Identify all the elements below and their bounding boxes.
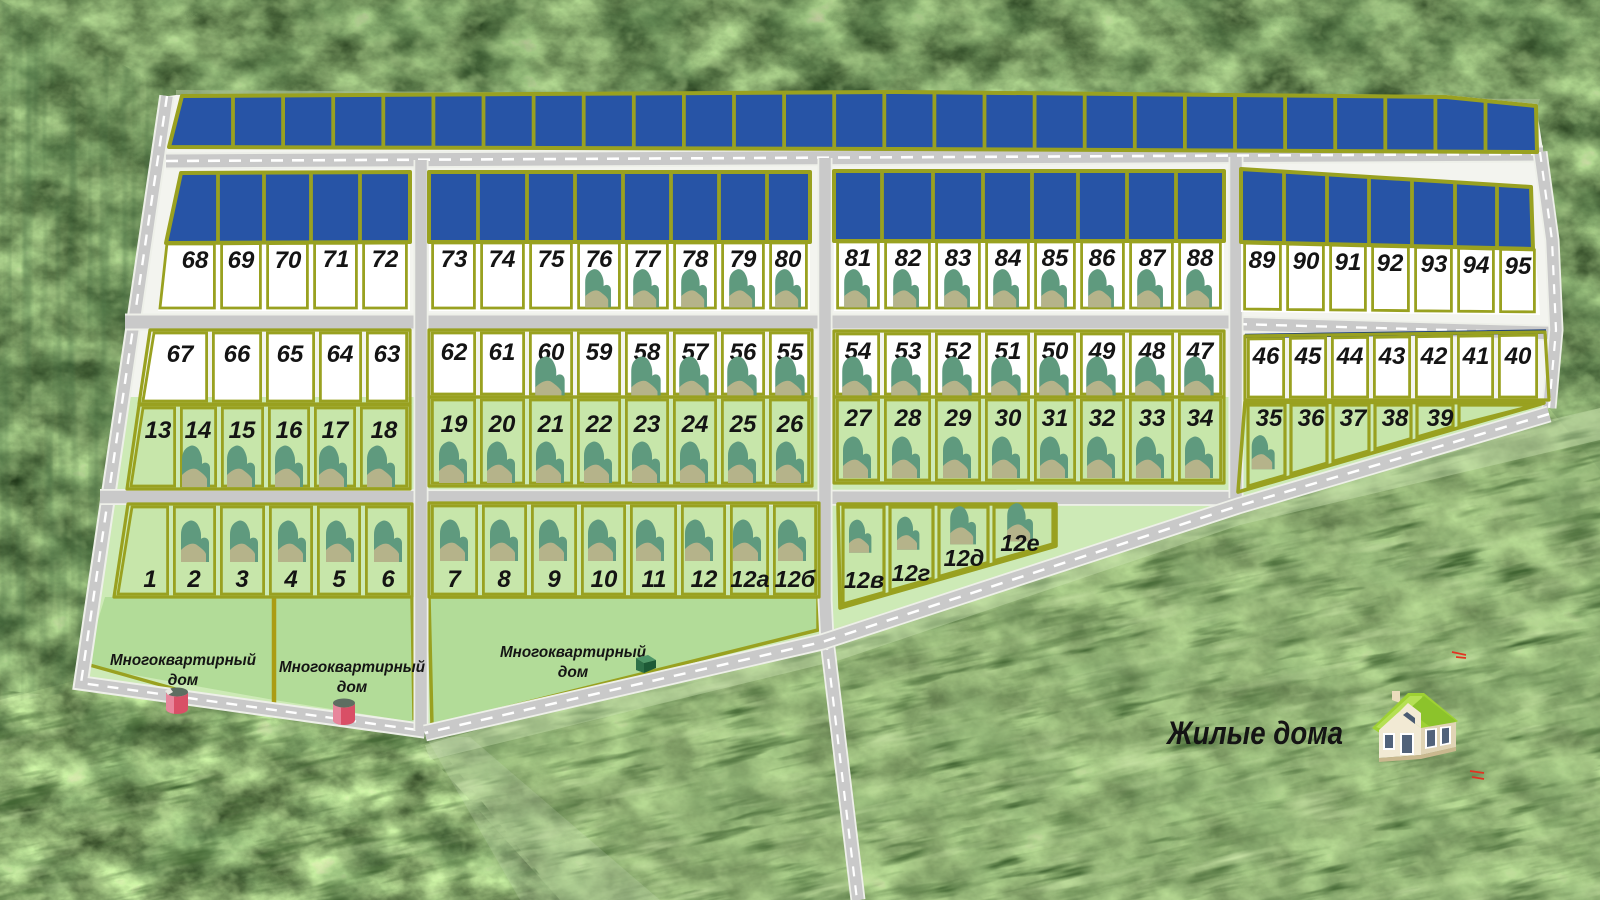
svg-text:35: 35 [1256,405,1283,432]
svg-text:82: 82 [895,245,922,272]
svg-text:27: 27 [844,405,873,432]
svg-text:72: 72 [372,246,399,273]
svg-text:12д: 12д [944,545,985,571]
svg-text:11: 11 [642,566,667,593]
svg-text:74: 74 [489,246,516,273]
svg-text:39: 39 [1427,405,1454,432]
svg-text:65: 65 [277,341,304,368]
svg-text:18: 18 [371,417,398,444]
svg-text:78: 78 [682,246,709,273]
svg-text:Многоквартирный: Многоквартирный [500,644,647,661]
svg-text:23: 23 [633,411,661,438]
svg-text:69: 69 [228,247,255,274]
svg-text:14: 14 [185,417,212,444]
svg-text:12в: 12в [844,567,884,593]
svg-text:2: 2 [186,566,201,593]
svg-text:40: 40 [1504,343,1532,370]
svg-text:75: 75 [538,246,565,273]
svg-text:34: 34 [1187,405,1214,432]
svg-text:41: 41 [1462,343,1490,370]
svg-text:дом: дом [558,664,589,681]
svg-text:дом: дом [337,679,368,696]
svg-text:Многоквартирный: Многоквартирный [279,659,426,676]
svg-text:22: 22 [585,411,613,438]
svg-text:5: 5 [332,566,346,593]
svg-text:92: 92 [1377,250,1404,277]
svg-text:38: 38 [1382,405,1409,432]
svg-text:84: 84 [995,245,1022,272]
svg-text:46: 46 [1252,343,1280,370]
svg-text:77: 77 [634,246,662,273]
svg-text:12а: 12а [730,566,769,592]
svg-text:12б: 12б [775,566,817,592]
svg-text:44: 44 [1336,343,1364,370]
svg-text:86: 86 [1089,245,1116,272]
svg-text:87: 87 [1139,245,1167,272]
svg-text:17: 17 [322,417,350,444]
svg-text:62: 62 [441,339,468,366]
svg-text:79: 79 [730,246,757,273]
svg-text:93: 93 [1421,251,1448,278]
svg-text:30: 30 [995,405,1022,432]
svg-text:85: 85 [1042,245,1069,272]
svg-text:73: 73 [441,246,468,273]
svg-text:63: 63 [374,341,401,368]
svg-text:83: 83 [945,245,972,272]
svg-text:95: 95 [1505,253,1532,280]
svg-text:45: 45 [1294,343,1322,370]
svg-text:7: 7 [447,566,462,593]
svg-text:12г: 12г [892,560,931,586]
svg-text:70: 70 [275,247,302,274]
svg-text:42: 42 [1420,343,1448,370]
svg-text:94: 94 [1463,252,1490,279]
svg-text:16: 16 [276,417,303,444]
svg-text:36: 36 [1298,405,1325,432]
svg-text:67: 67 [167,341,195,368]
svg-text:81: 81 [845,245,872,272]
svg-text:15: 15 [229,417,256,444]
svg-text:9: 9 [547,566,561,593]
svg-text:Жилые дома: Жилые дома [1165,715,1343,751]
svg-text:68: 68 [182,247,209,274]
svg-text:26: 26 [776,411,804,438]
svg-text:90: 90 [1293,248,1320,275]
svg-text:24: 24 [681,411,709,438]
svg-text:80: 80 [775,246,802,273]
svg-text:37: 37 [1340,405,1368,432]
svg-text:4: 4 [283,566,297,593]
svg-text:31: 31 [1042,405,1069,432]
svg-text:21: 21 [537,411,565,438]
svg-text:25: 25 [729,411,757,438]
svg-text:1: 1 [143,566,156,593]
svg-text:64: 64 [327,341,354,368]
svg-text:43: 43 [1378,343,1406,370]
svg-text:10: 10 [591,566,618,593]
svg-text:76: 76 [586,246,613,273]
svg-text:66: 66 [224,341,251,368]
svg-text:89: 89 [1249,247,1276,274]
svg-text:32: 32 [1089,405,1116,432]
svg-text:33: 33 [1139,405,1166,432]
svg-text:71: 71 [323,246,350,273]
svg-text:дом: дом [168,672,199,689]
svg-text:20: 20 [488,411,516,438]
svg-text:12е: 12е [1000,530,1039,556]
svg-text:91: 91 [1335,249,1362,276]
svg-text:6: 6 [381,566,395,593]
svg-text:28: 28 [894,405,922,432]
svg-text:3: 3 [235,566,249,593]
svg-text:13: 13 [145,417,172,444]
svg-text:59: 59 [586,339,613,366]
svg-text:8: 8 [497,566,511,593]
svg-text:88: 88 [1187,245,1214,272]
svg-text:61: 61 [489,339,516,366]
svg-text:29: 29 [944,405,972,432]
svg-text:12: 12 [691,566,718,593]
svg-text:19: 19 [441,411,468,438]
svg-text:Многоквартирный: Многоквартирный [110,652,257,669]
